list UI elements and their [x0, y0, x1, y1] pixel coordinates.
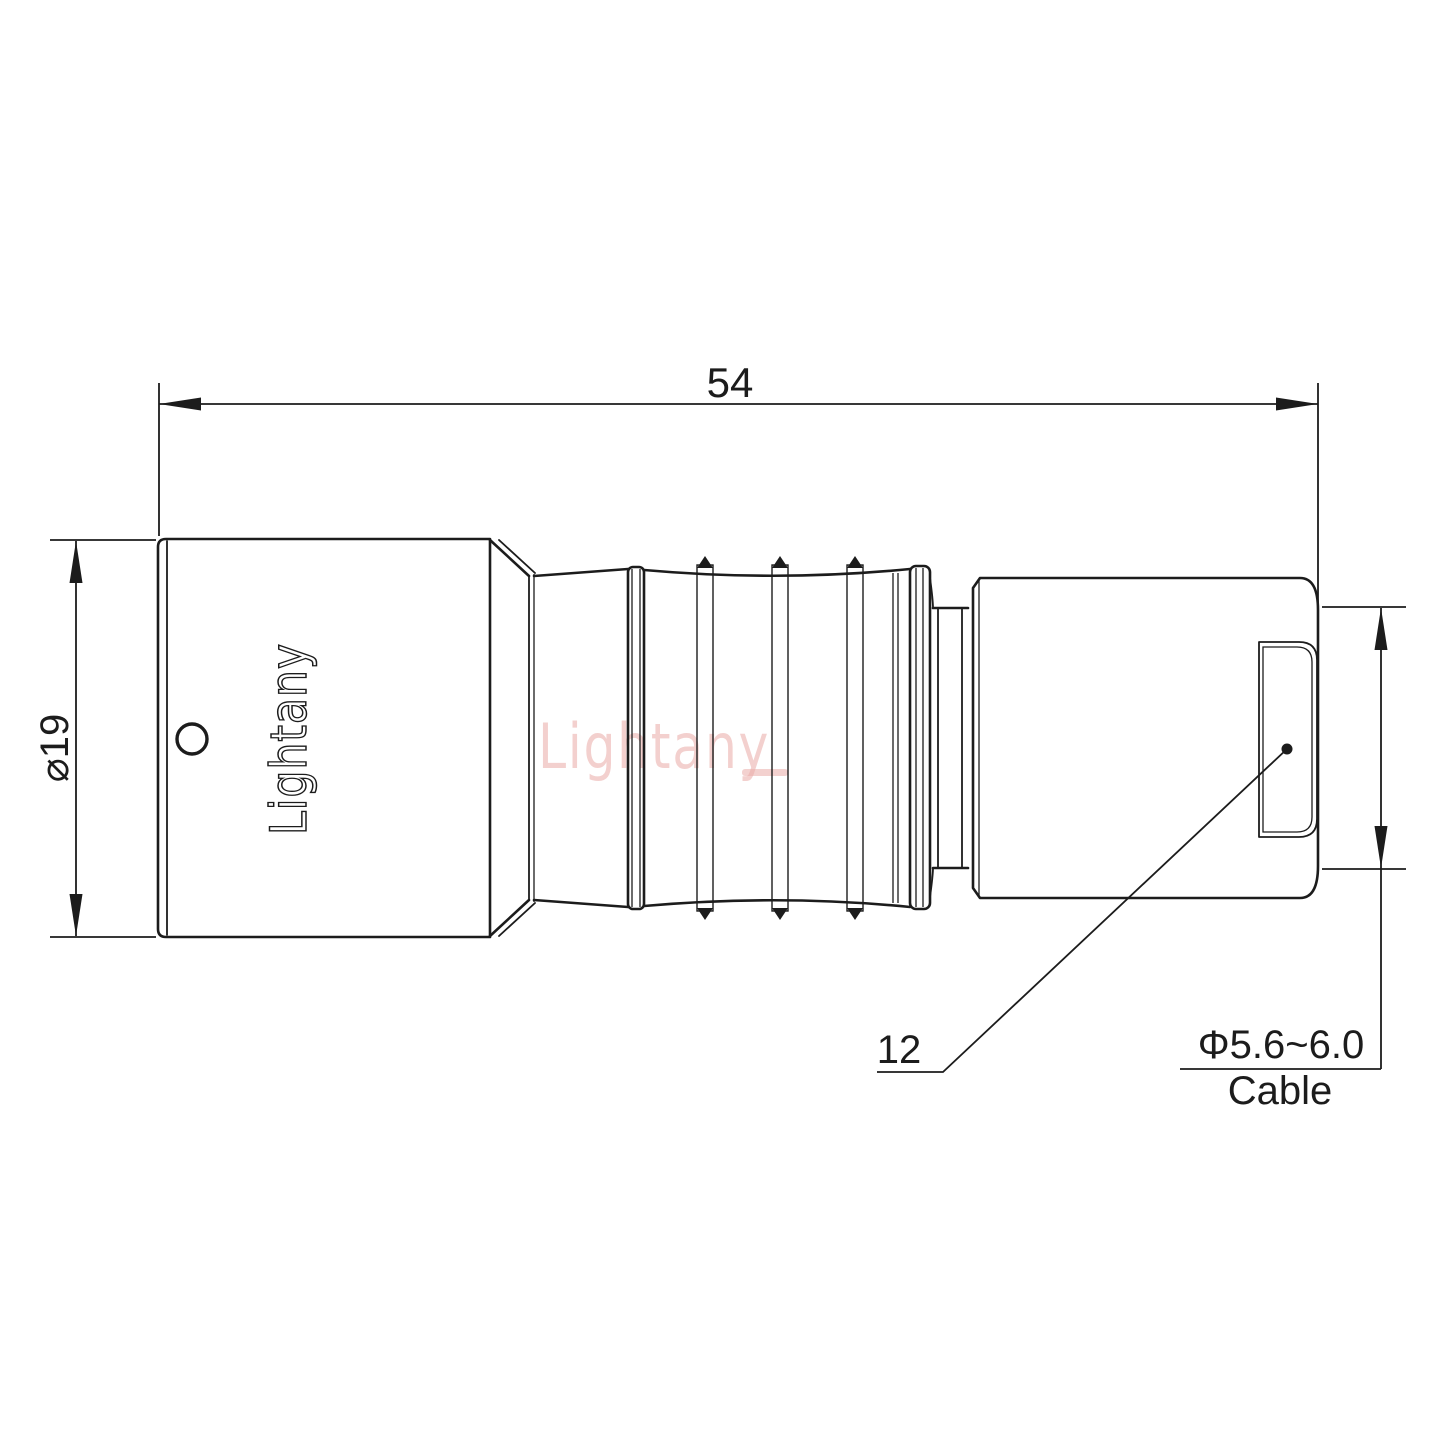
grip-bottom-edge	[644, 900, 910, 907]
dim-19-text: ⌀19	[33, 714, 77, 783]
knurl-band-2	[772, 556, 788, 920]
dim-19-arrow-top	[70, 541, 83, 583]
rear-barrel-outline	[973, 578, 1318, 898]
mid-cylinder-top	[534, 569, 628, 576]
taper-bottom-edge	[490, 900, 529, 936]
dimension-cable-entry: Φ5.6~6.0 Cable	[1180, 607, 1406, 1113]
dimension-length-54: 54	[159, 359, 1318, 605]
dim-54-text: 54	[707, 359, 754, 406]
taper-top-inner-edge	[499, 540, 535, 573]
dim-cable-arrow-top	[1375, 608, 1388, 650]
dim-19-arrow-bottom	[70, 894, 83, 936]
front-shell-hole	[177, 724, 207, 754]
taper-top-edge	[490, 540, 529, 576]
grip-top-edge	[644, 569, 910, 576]
cable-bushing-outline	[1259, 642, 1317, 837]
grip-right-collar-lines	[916, 568, 923, 907]
body-engraving-text: Lightany	[260, 643, 318, 835]
technical-drawing-page: Lightany Lightany	[0, 0, 1440, 1440]
dim-54-arrow-left	[159, 398, 201, 411]
cable-diameter-text: Φ5.6~6.0	[1198, 1023, 1364, 1067]
watermark-underline	[742, 769, 788, 776]
taper-bottom-inner-edge	[499, 903, 535, 936]
neck-surface-lines	[938, 608, 962, 868]
watermark-text: Lightany	[538, 710, 770, 783]
grip-right-surface-lines	[893, 573, 898, 903]
knurl-band-3	[847, 556, 863, 920]
connector-drawing: Lightany Lightany	[0, 0, 1440, 1440]
mid-cylinder-bottom	[534, 900, 628, 907]
cable-word-text: Cable	[1228, 1069, 1333, 1113]
label-12-text: 12	[877, 1028, 922, 1072]
dim-54-arrow-right	[1276, 398, 1318, 411]
cable-bushing-inner-line	[1263, 647, 1312, 832]
dimension-diameter-19: ⌀19	[33, 540, 156, 937]
grip-right-collar	[910, 566, 930, 909]
dim-cable-arrow-bottom	[1375, 826, 1388, 868]
watermark: Lightany	[538, 710, 788, 783]
